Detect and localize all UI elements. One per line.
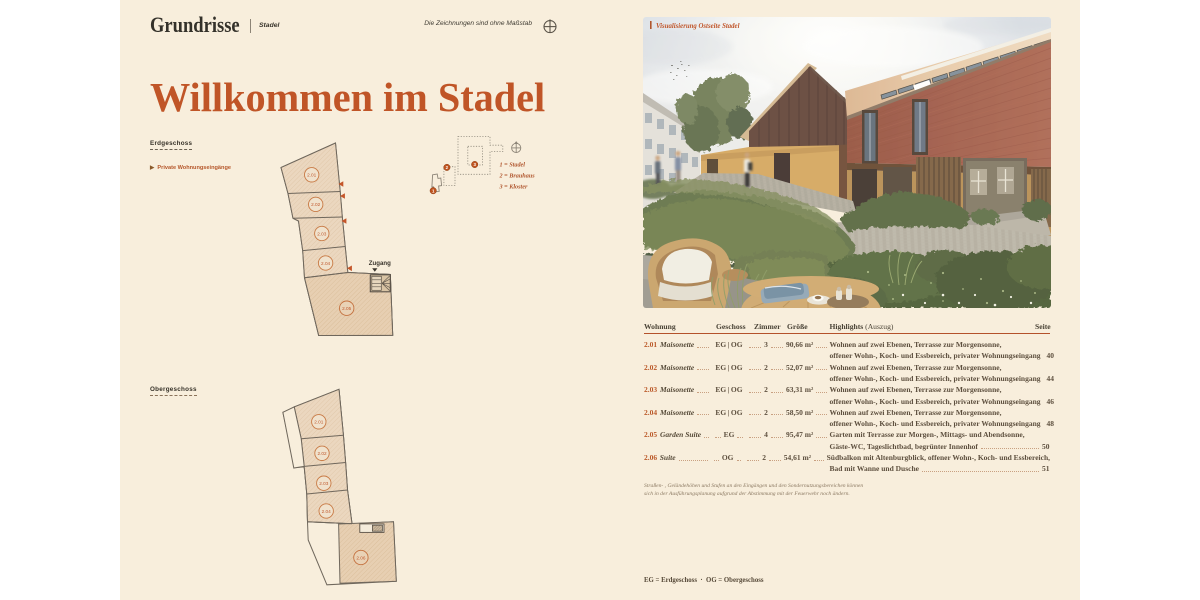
svg-text:2.04: 2.04 bbox=[321, 261, 331, 266]
svg-text:2.03: 2.03 bbox=[319, 481, 329, 486]
svg-text:2 = Brauhaus: 2 = Brauhaus bbox=[499, 173, 536, 180]
svg-text:2.01: 2.01 bbox=[307, 173, 317, 178]
svg-text:3 = Kloster: 3 = Kloster bbox=[499, 184, 529, 191]
svg-text:2.02: 2.02 bbox=[311, 202, 321, 207]
svg-text:2.06: 2.06 bbox=[356, 555, 366, 560]
svg-text:2.02: 2.02 bbox=[317, 451, 327, 456]
svg-text:Visualisierung Ostseite Stadel: Visualisierung Ostseite Stadel bbox=[656, 23, 740, 30]
svg-text:1 = Stadel: 1 = Stadel bbox=[500, 162, 526, 169]
svg-text:2.04: 2.04 bbox=[322, 509, 332, 514]
svg-text:Zugang: Zugang bbox=[369, 260, 391, 267]
svg-text:2.05: 2.05 bbox=[342, 306, 352, 311]
svg-text:2.01: 2.01 bbox=[314, 420, 324, 425]
svg-text:2.03: 2.03 bbox=[317, 231, 327, 236]
